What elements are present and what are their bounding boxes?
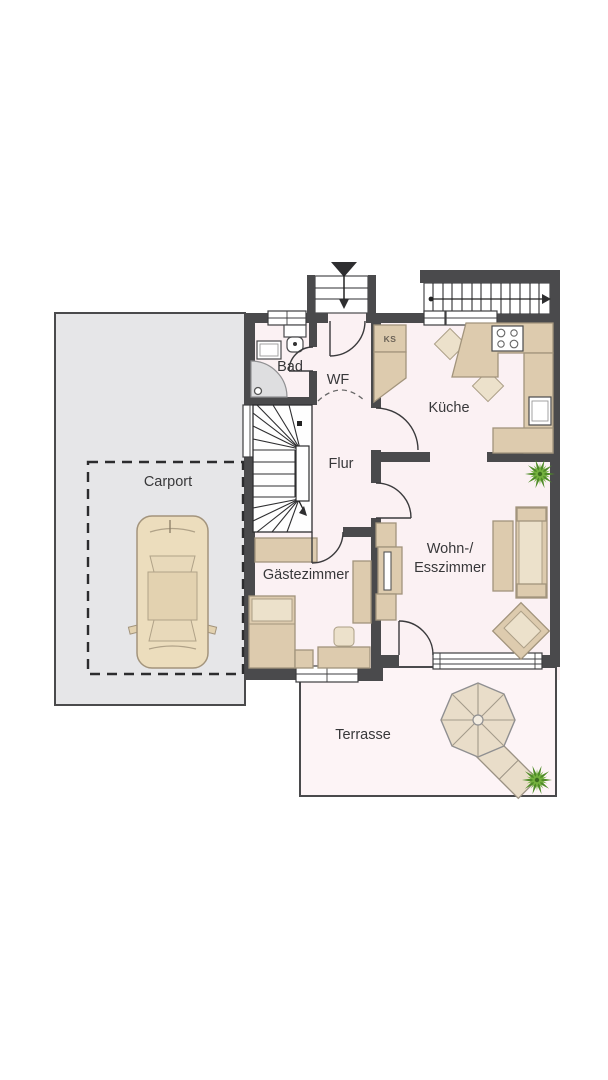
coffee-table [493,521,513,591]
umbrella-icon [441,683,515,757]
kueche-label: Küche [428,400,469,416]
wohn-esszimmer-label-line2: Esszimmer [414,560,486,576]
gaestezimmer-label: Gästezimmer [263,567,349,583]
stove-icon [492,326,523,351]
desk [318,647,370,668]
window-icon-kitchen-1 [424,311,445,325]
wohn-esszimmer-label-line1: Wohn-/ [427,541,474,557]
entrance-steps [315,276,368,313]
tv [384,552,391,590]
car-icon [128,516,216,668]
terrace-area: Terrasse [300,667,556,798]
fridge-label: KS [384,334,397,344]
floorplan-drawing: Carport Terrasse [0,0,608,1080]
wardrobe [255,538,317,562]
sink-icon [257,341,281,359]
sofa [516,507,547,598]
staircase-icon [253,405,312,532]
wf-label: WF [327,372,350,388]
desk-chair [334,627,354,646]
flur-label: Flur [329,456,354,472]
carport-area: Carport [55,313,245,705]
terrace-label: Terrasse [335,727,391,743]
stair-handrail [296,446,309,501]
exterior-staircase-icon [424,283,551,314]
cabinet [353,561,371,623]
fridge: KS [374,325,406,352]
kitchen-counter-bottom [493,428,553,453]
bad-label: Bad [277,359,303,375]
nightstand [295,650,313,668]
kitchen-sink-icon [529,397,551,425]
stair-start-marker [297,421,302,426]
carport-label: Carport [144,474,192,490]
floorplan-page: Carport Terrasse [0,0,608,1080]
bed [249,596,295,668]
window-icon-bad [268,311,306,325]
